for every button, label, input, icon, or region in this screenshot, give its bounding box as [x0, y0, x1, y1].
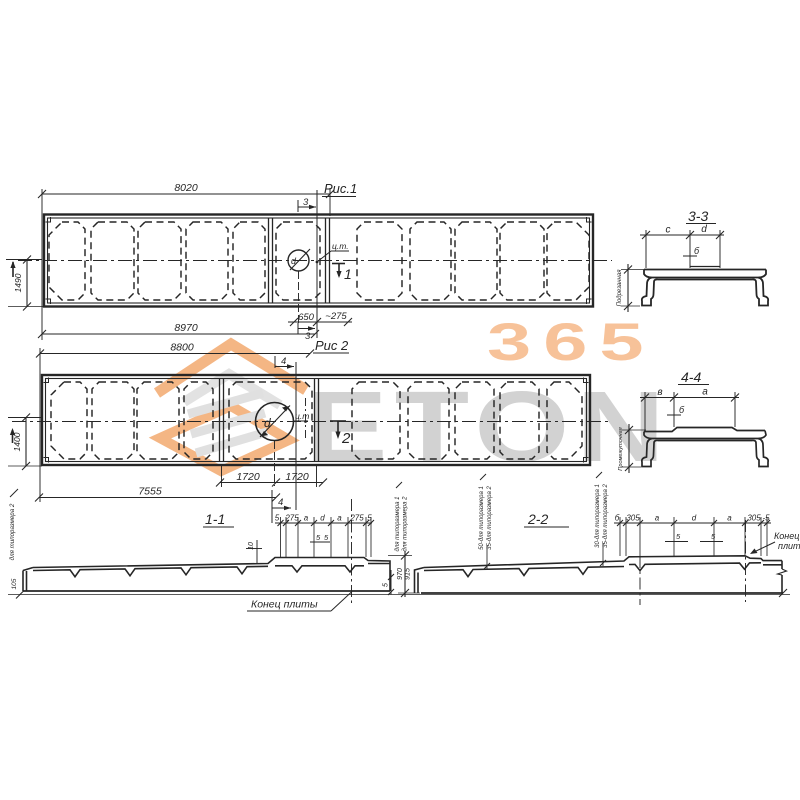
svg-text:8020: 8020 — [174, 182, 198, 194]
svg-text:для типоразмера 2: для типоразмера 2 — [9, 503, 16, 560]
svg-text:в: в — [657, 387, 662, 398]
svg-text:305: 305 — [747, 514, 761, 523]
svg-text:5: 5 — [275, 514, 280, 523]
svg-text:5: 5 — [367, 514, 372, 523]
svg-text:для типоразмера 2: для типоразмера 2 — [403, 496, 409, 552]
svg-text:Конец плиты: Конец плиты — [251, 599, 318, 611]
svg-text:1720: 1720 — [236, 471, 260, 483]
svg-text:Промежуточная: Промежуточная — [618, 427, 624, 470]
svg-text:a: a — [727, 514, 732, 523]
svg-text:4-4: 4-4 — [681, 369, 701, 385]
svg-text:Конец: Конец — [774, 531, 799, 541]
svg-text:3: 3 — [303, 197, 309, 208]
svg-text:8970: 8970 — [174, 322, 198, 334]
svg-text:275: 275 — [284, 514, 299, 523]
svg-text:650: 650 — [298, 312, 315, 323]
svg-text:a: a — [337, 514, 342, 523]
svg-text:~275: ~275 — [325, 311, 347, 322]
svg-text:7555: 7555 — [138, 486, 162, 498]
svg-text:d: d — [320, 514, 325, 523]
svg-text:плиты: плиты — [778, 541, 800, 551]
svg-text:для типоразмера 1: для типоразмера 1 — [395, 497, 401, 552]
svg-text:1490: 1490 — [13, 273, 23, 292]
svg-text:4: 4 — [281, 356, 286, 367]
svg-text:Рис 2: Рис 2 — [315, 338, 349, 353]
svg-text:3-3: 3-3 — [688, 208, 708, 224]
svg-text:Подрезанная: Подрезанная — [617, 269, 623, 307]
svg-text:4: 4 — [278, 497, 283, 508]
svg-text:Рис.1: Рис.1 — [324, 181, 357, 196]
svg-text:1-1: 1-1 — [205, 511, 225, 527]
svg-text:ц.т.: ц.т. — [332, 241, 349, 251]
svg-text:1400: 1400 — [12, 432, 22, 451]
svg-text:105: 105 — [11, 578, 18, 589]
svg-text:a: a — [655, 514, 660, 523]
svg-text:35-для типоразмера 2: 35-для типоразмера 2 — [487, 486, 493, 550]
svg-text:970: 970 — [397, 568, 404, 580]
svg-text:d: d — [692, 514, 697, 523]
svg-text:c: c — [666, 225, 671, 236]
svg-text:2: 2 — [341, 430, 351, 447]
svg-text:d: d — [264, 416, 271, 430]
svg-text:5: 5 — [383, 583, 390, 587]
svg-text:1720: 1720 — [285, 471, 309, 483]
svg-text:б: б — [615, 514, 620, 523]
svg-text:8800: 8800 — [170, 342, 194, 354]
svg-text:915: 915 — [405, 568, 412, 580]
svg-text:-5: -5 — [762, 514, 770, 523]
svg-text:50-для типоразмера 1: 50-для типоразмера 1 — [479, 486, 485, 550]
svg-text:365: 365 — [487, 313, 656, 372]
svg-text:1: 1 — [344, 266, 352, 282]
svg-text:a: a — [304, 514, 309, 523]
svg-text:10: 10 — [248, 542, 255, 550]
svg-text:a: a — [702, 387, 708, 398]
svg-text:d: d — [701, 224, 707, 235]
svg-text:30-для типоразмера 1: 30-для типоразмера 1 — [595, 484, 601, 548]
svg-text:ц.т: ц.т — [295, 411, 309, 421]
svg-text:2-2: 2-2 — [527, 511, 548, 527]
svg-text:3: 3 — [305, 331, 311, 342]
svg-text:35-для типоразмера 2: 35-для типоразмера 2 — [603, 484, 609, 548]
svg-text:305: 305 — [626, 514, 640, 523]
